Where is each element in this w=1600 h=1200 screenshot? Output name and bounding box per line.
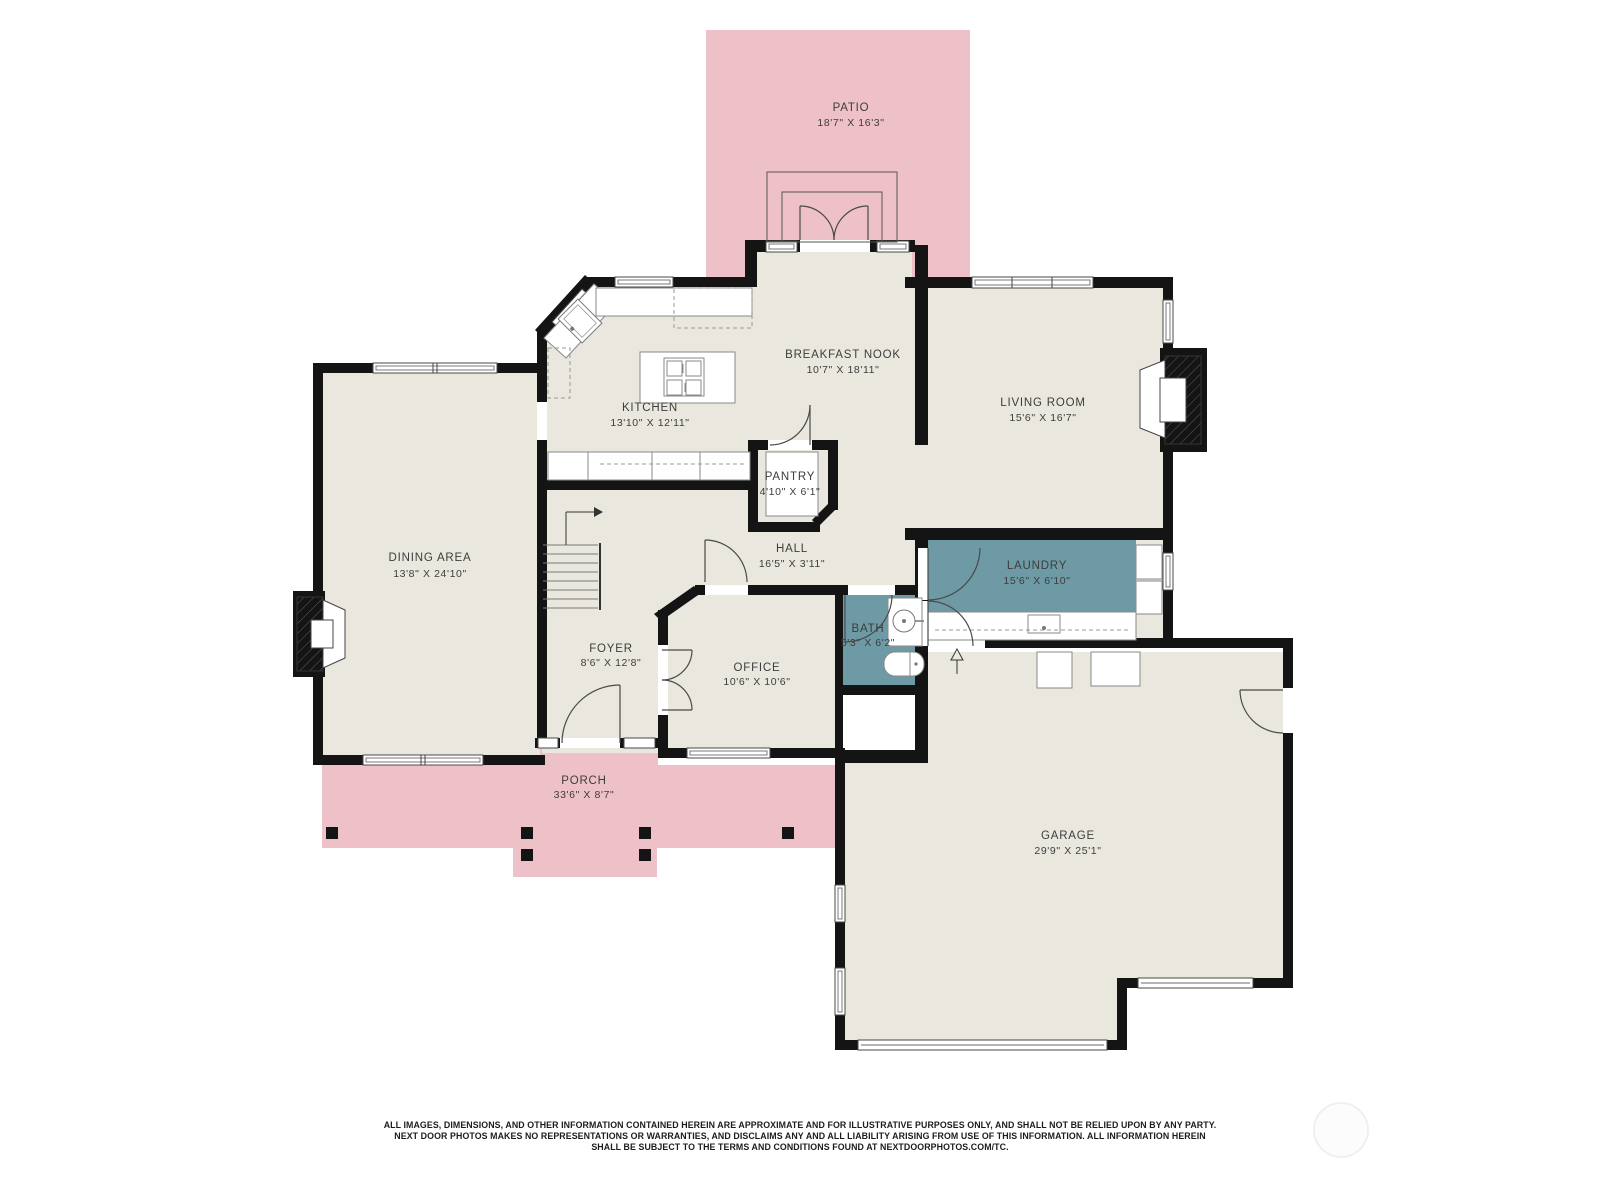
room-label-living-room: LIVING ROOM: [1000, 397, 1085, 409]
room-dims-bath: 5'3" X 6'2": [841, 637, 895, 649]
disclaimer-line-3: SHALL BE SUBJECT TO THE TERMS AND CONDIT…: [591, 1142, 1008, 1152]
room-dims-foyer: 8'6" X 12'8": [581, 657, 642, 669]
disclaimer-line-2: NEXT DOOR PHOTOS MAKES NO REPRESENTATION…: [394, 1131, 1205, 1141]
room-dims-breakfast-nook: 10'7" X 18'11": [807, 364, 880, 376]
room-dims-dining-area: 13'8" X 24'10": [393, 568, 467, 580]
porch-area: [322, 748, 835, 877]
room-label-breakfast-nook: BREAKFAST NOOK: [785, 349, 901, 361]
living-top-window: [972, 277, 1093, 288]
garage-door-left: [858, 1040, 1107, 1050]
room-label-hall: HALL: [776, 543, 808, 555]
garage-left-window-1: [835, 885, 845, 922]
laundry-counter: [928, 612, 1136, 640]
room-dims-office: 10'6" X 10'6": [723, 676, 790, 688]
room-label-office: OFFICE: [734, 662, 781, 674]
laundry-cabinet-1: [1136, 545, 1162, 579]
washer: [1037, 652, 1072, 688]
kitchen-island: [640, 352, 735, 403]
room-label-foyer: FOYER: [589, 643, 633, 655]
room-dims-hall: 16'5" X 3'11": [759, 558, 825, 570]
kitchen-lower-counter: [548, 452, 750, 480]
kitchen-top-window: [615, 277, 673, 287]
room-label-bath: BATH: [851, 623, 884, 635]
room-label-patio: PATIO: [833, 102, 870, 114]
dining-top-window: [373, 363, 497, 373]
dining-floor: [318, 368, 540, 760]
laundry-right-window: [1163, 553, 1173, 590]
watermark-circle: [1314, 1103, 1368, 1157]
room-dims-living-room: 15'6" X 16'7": [1009, 412, 1076, 424]
dryer: [1091, 652, 1140, 686]
disclaimer-line-1: ALL IMAGES, DIMENSIONS, AND OTHER INFORM…: [384, 1120, 1217, 1130]
hall-floor: [542, 480, 920, 595]
room-label-garage: GARAGE: [1041, 830, 1095, 842]
laundry-cabinet-2: [1136, 581, 1162, 614]
garage-door-right: [1138, 978, 1253, 988]
office-bottom-window: [687, 748, 770, 758]
toilet: [884, 652, 924, 676]
room-dims-pantry: 4'10" X 6'1": [760, 486, 821, 498]
floor-plan-page: PATIO 18'7" X 16'3" BREAKFAST NOOK 10'7"…: [0, 0, 1600, 1200]
room-dims-porch: 33'6" X 8'7": [554, 789, 615, 801]
room-label-pantry: PANTRY: [765, 471, 815, 483]
room-dims-patio: 18'7" X 16'3": [817, 117, 884, 129]
foyer-office-floor: [542, 585, 843, 753]
room-label-porch: PORCH: [561, 775, 607, 787]
disclaimer: ALL IMAGES, DIMENSIONS, AND OTHER INFORM…: [384, 1120, 1217, 1152]
room-label-dining-area: DINING AREA: [389, 552, 472, 564]
floor-plan-drawing: PATIO 18'7" X 16'3" BREAKFAST NOOK 10'7"…: [0, 0, 1600, 1200]
room-label-laundry: LAUNDRY: [1007, 560, 1067, 572]
room-dims-kitchen: 13'10" X 12'11": [610, 417, 689, 429]
dining-bottom-window: [363, 755, 483, 765]
nook-right-window: [877, 241, 909, 252]
living-right-window: [1163, 300, 1173, 343]
foyer-front-window-right: [624, 738, 655, 748]
room-label-kitchen: KITCHEN: [622, 402, 678, 414]
pantry-shelves: [766, 452, 818, 516]
room-dims-garage: 29'9" X 25'1": [1034, 845, 1101, 857]
room-dims-laundry: 15'6" X 6'10": [1003, 575, 1070, 587]
garage-left-window-2: [835, 968, 845, 1015]
nook-left-window: [766, 241, 797, 252]
foyer-front-window-left: [538, 738, 558, 748]
